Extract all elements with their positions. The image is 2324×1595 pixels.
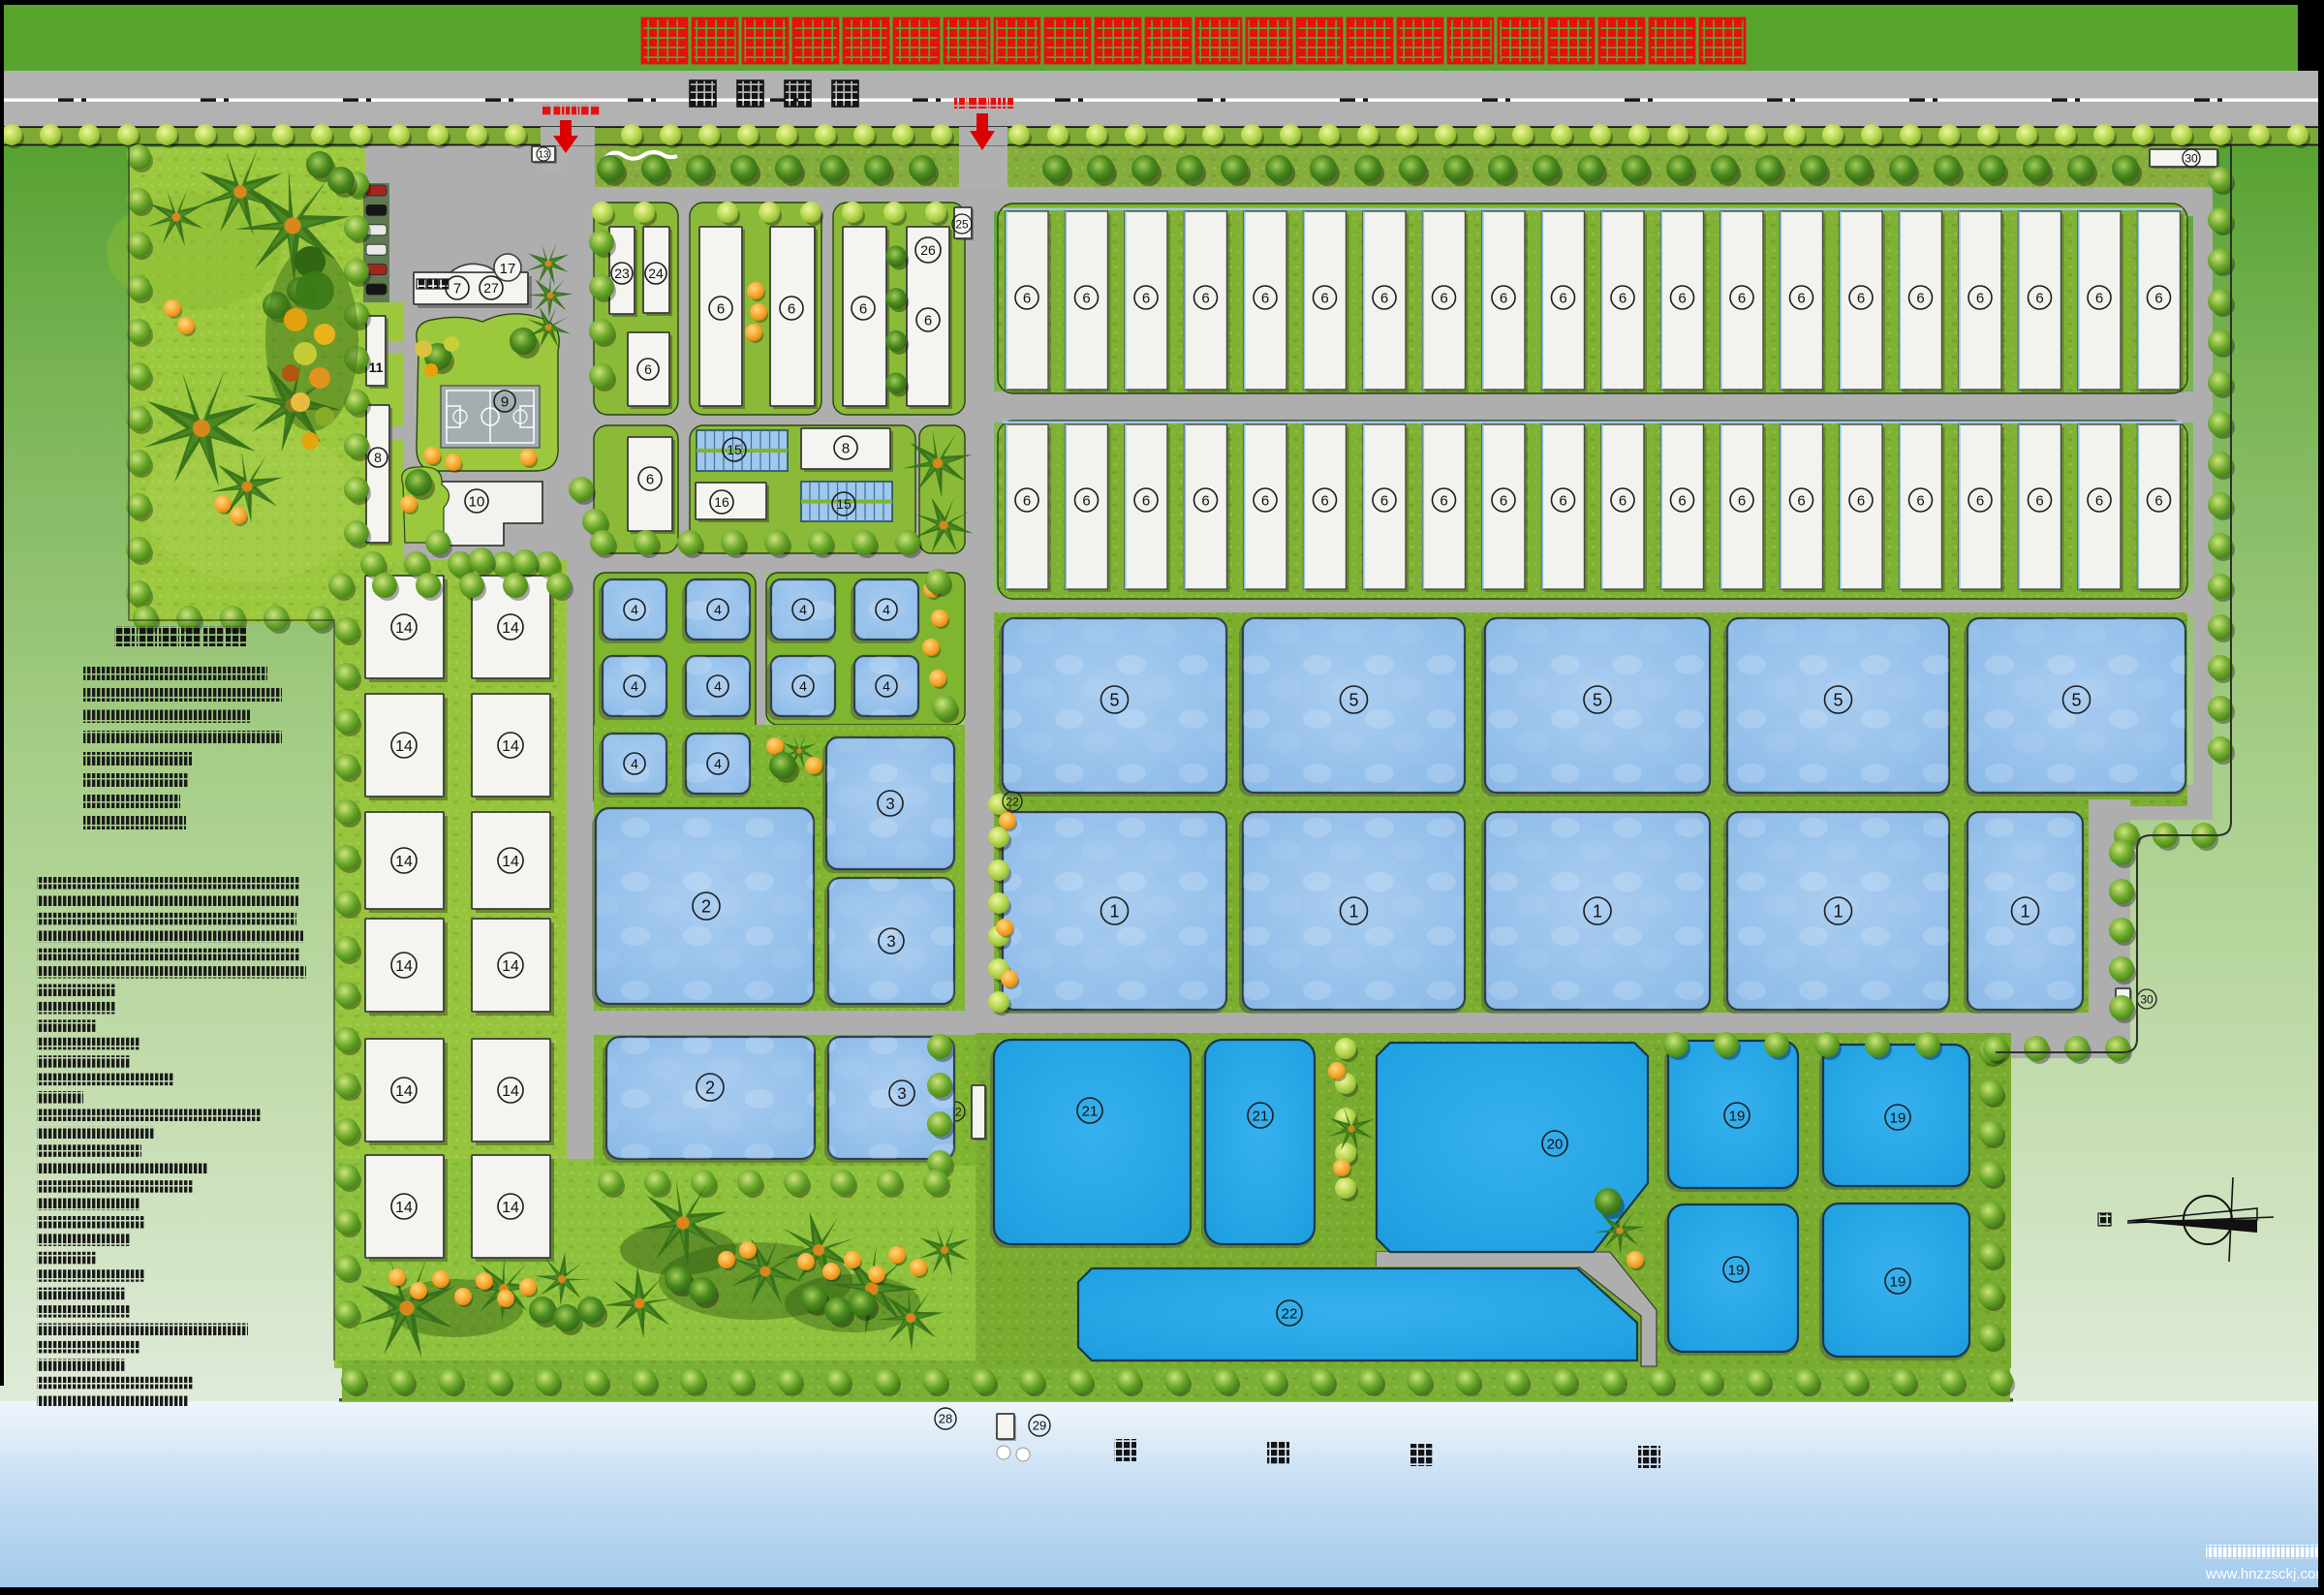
svg-text:10: 10 [469,493,485,510]
svg-text:14: 14 [395,620,413,637]
svg-text:14: 14 [395,738,413,755]
svg-text:6: 6 [1619,492,1627,509]
svg-text:6: 6 [1142,492,1150,509]
svg-text:4: 4 [714,756,722,771]
svg-text:2: 2 [705,1078,715,1097]
svg-text:6: 6 [1678,492,1686,509]
svg-text:14: 14 [395,854,413,870]
svg-text:1: 1 [2020,901,2030,921]
svg-text:15: 15 [836,496,852,512]
svg-text:5: 5 [1109,690,1119,709]
svg-text:6: 6 [1082,290,1090,306]
svg-text:6: 6 [1857,492,1865,509]
svg-text:5: 5 [1348,690,1358,709]
svg-text:17: 17 [500,261,516,277]
svg-text:20: 20 [1547,1136,1564,1152]
svg-text:6: 6 [1023,492,1031,509]
svg-text:29: 29 [1033,1419,1046,1433]
svg-text:6: 6 [1142,290,1150,306]
svg-text:6: 6 [1261,290,1269,306]
svg-text:6: 6 [1261,492,1269,509]
svg-text:14: 14 [395,1200,413,1216]
svg-text:14: 14 [502,738,519,755]
svg-text:6: 6 [1976,290,1984,306]
svg-text:14: 14 [395,1083,413,1100]
svg-text:15: 15 [727,442,742,457]
svg-text:14: 14 [502,1083,519,1100]
svg-text:14: 14 [502,620,519,637]
svg-text:6: 6 [1738,290,1746,306]
svg-text:14: 14 [502,958,519,975]
svg-text:19: 19 [1729,1108,1746,1124]
svg-text:4: 4 [631,756,638,771]
svg-text:7: 7 [453,280,461,297]
svg-text:6: 6 [2095,290,2103,306]
svg-text:6: 6 [788,300,795,317]
svg-text:6: 6 [1797,290,1805,306]
svg-text:4: 4 [631,602,638,617]
svg-text:6: 6 [1380,492,1388,509]
svg-text:4: 4 [799,602,807,617]
svg-text:6: 6 [1559,290,1566,306]
svg-text:4: 4 [883,678,890,694]
svg-text:6: 6 [717,300,725,317]
svg-text:3: 3 [886,932,895,951]
svg-text:6: 6 [1320,492,1328,509]
svg-text:6: 6 [1559,492,1566,509]
svg-text:5: 5 [2071,690,2081,709]
svg-text:6: 6 [646,471,654,487]
svg-text:30: 30 [2140,992,2154,1006]
svg-text:19: 19 [1890,1110,1906,1126]
svg-text:6: 6 [1023,290,1031,306]
svg-text:9: 9 [501,393,509,410]
svg-text:www.hnzzsckj.com: www.hnzzsckj.com [2205,1566,2324,1582]
svg-text:22: 22 [1282,1305,1298,1322]
svg-text:4: 4 [883,602,890,617]
svg-text:25: 25 [955,217,969,231]
svg-text:21: 21 [1082,1103,1099,1119]
svg-text:26: 26 [920,242,936,258]
svg-text:8: 8 [842,440,850,456]
svg-text:6: 6 [2154,492,2162,509]
svg-text:13: 13 [538,150,549,161]
svg-text:6: 6 [1857,290,1865,306]
svg-text:23: 23 [614,266,630,281]
svg-text:2: 2 [701,896,711,916]
svg-text:6: 6 [1678,290,1686,306]
svg-text:6: 6 [644,361,652,377]
svg-text:6: 6 [1440,492,1447,509]
svg-text:6: 6 [1320,290,1328,306]
svg-text:19: 19 [1890,1273,1906,1290]
svg-text:4: 4 [714,678,722,694]
svg-text:4: 4 [714,602,722,617]
svg-text:14: 14 [502,1200,519,1216]
svg-text:1: 1 [1593,901,1602,921]
svg-text:6: 6 [2154,290,2162,306]
svg-text:16: 16 [714,494,729,510]
svg-text:4: 4 [631,678,638,694]
svg-text:6: 6 [1738,492,1746,509]
svg-text:6: 6 [1916,290,1924,306]
svg-text:3: 3 [885,795,894,813]
svg-text:14: 14 [502,854,519,870]
svg-text:6: 6 [1440,290,1447,306]
svg-text:6: 6 [1797,492,1805,509]
svg-text:6: 6 [2035,492,2043,509]
svg-text:8: 8 [374,450,382,465]
svg-text:1: 1 [1109,901,1119,921]
svg-text:6: 6 [2035,290,2043,306]
svg-text:6: 6 [1619,290,1627,306]
svg-text:28: 28 [939,1412,952,1426]
svg-text:6: 6 [1201,492,1209,509]
svg-text:6: 6 [1976,492,1984,509]
svg-text:30: 30 [2185,151,2198,165]
svg-text:6: 6 [2095,492,2103,509]
svg-text:6: 6 [1500,492,1507,509]
svg-text:6: 6 [1380,290,1388,306]
svg-text:19: 19 [1728,1262,1745,1278]
svg-text:24: 24 [648,266,664,281]
svg-text:4: 4 [799,678,807,694]
svg-text:6: 6 [924,312,932,328]
svg-text:6: 6 [1916,492,1924,509]
svg-text:1: 1 [1348,901,1358,921]
svg-text:6: 6 [859,300,867,317]
svg-text:6: 6 [1500,290,1507,306]
svg-text:22: 22 [1006,795,1019,808]
svg-text:1: 1 [1833,901,1843,921]
svg-text:6: 6 [1201,290,1209,306]
svg-text:27: 27 [483,280,499,296]
svg-text:5: 5 [1593,690,1602,709]
svg-text:3: 3 [897,1084,906,1103]
svg-text:14: 14 [395,958,413,975]
svg-text:6: 6 [1082,492,1090,509]
svg-text:21: 21 [1253,1108,1269,1124]
svg-text:5: 5 [1833,690,1843,709]
